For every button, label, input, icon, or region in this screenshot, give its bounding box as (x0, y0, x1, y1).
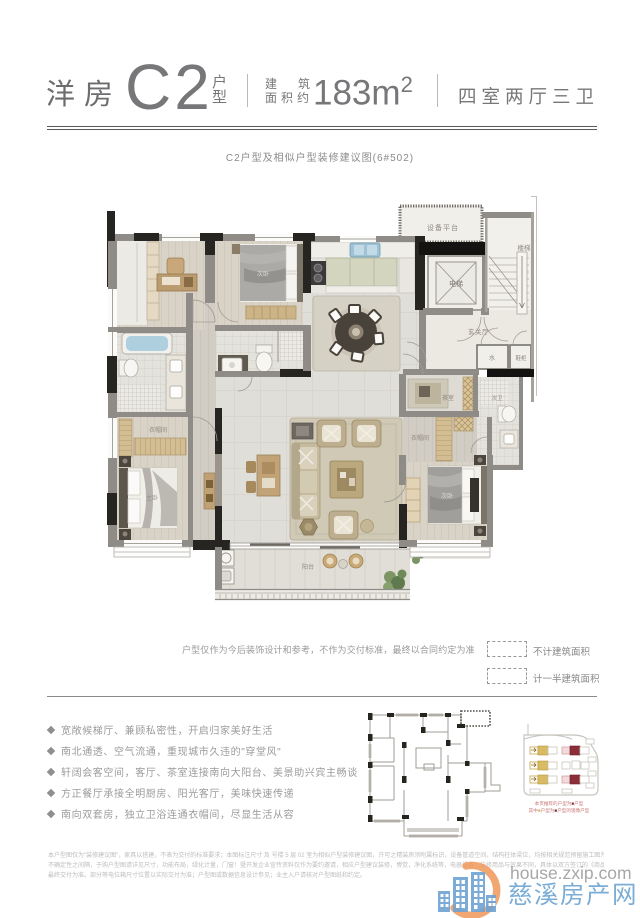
svg-text:楼梯: 楼梯 (518, 243, 532, 252)
svg-text:本页推荐的户型为■户型: 本页推荐的户型为■户型 (535, 800, 584, 807)
svg-text:次卧: 次卧 (441, 492, 453, 500)
svg-text:衣帽间: 衣帽间 (149, 426, 167, 434)
svg-text:衣帽间: 衣帽间 (411, 434, 429, 442)
svg-text:鞋柜: 鞋柜 (515, 354, 527, 362)
svg-text:次卧: 次卧 (257, 270, 269, 278)
svg-text:设备平台: 设备平台 (427, 223, 459, 232)
svg-text:阳台: 阳台 (302, 563, 314, 571)
svg-text:茶室: 茶室 (442, 394, 454, 402)
svg-text:次卫: 次卫 (491, 394, 503, 402)
svg-text:电梯: 电梯 (449, 279, 463, 288)
svg-text:水: 水 (489, 354, 495, 362)
svg-text:其中■户型为■户型的镜像户型: 其中■户型为■户型的镜像户型 (529, 807, 590, 814)
svg-text:慈溪房产网: 慈溪房产网 (508, 881, 638, 909)
svg-text:house.zxip.com: house.zxip.com (510, 863, 632, 883)
svg-text:主卧: 主卧 (146, 494, 158, 502)
